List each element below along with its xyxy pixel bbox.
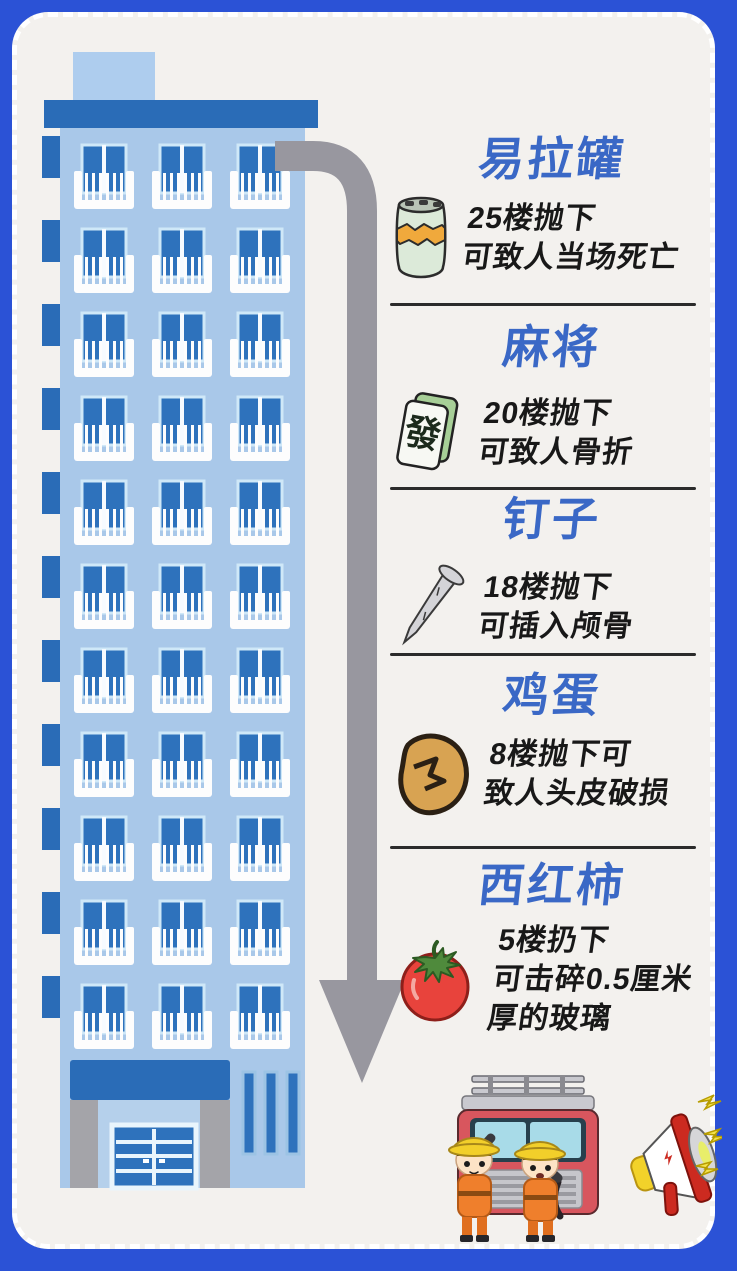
item-section-egg: 鸡蛋 8楼抛下可 致人头皮破损 bbox=[382, 670, 722, 817]
section-divider bbox=[390, 653, 696, 656]
entrance-pillar-right bbox=[200, 1100, 230, 1188]
section-divider bbox=[390, 303, 696, 306]
item-section-tomato: 西红柿 5楼扔下 可击碎0.5厘米 厚的玻璃 bbox=[382, 860, 722, 1038]
item-title: 麻将 bbox=[379, 322, 724, 373]
section-divider bbox=[390, 846, 696, 849]
item-description: 5楼扔下 可击碎0.5厘米 厚的玻璃 bbox=[485, 921, 701, 1038]
item-description: 25楼抛下 可致人当场死亡 bbox=[460, 199, 688, 277]
entrance-door bbox=[112, 1125, 196, 1188]
mahjong-tile-icon: 發 bbox=[392, 383, 466, 483]
rooftop-structure bbox=[73, 52, 155, 102]
item-description: 18楼抛下 可插入颅骨 bbox=[476, 568, 642, 646]
item-title: 易拉罐 bbox=[379, 134, 724, 185]
firefighters-illustration bbox=[430, 1072, 722, 1250]
nail-icon bbox=[392, 555, 466, 659]
item-description: 20楼抛下 可致人骨折 bbox=[476, 394, 642, 472]
entrance-canopy bbox=[70, 1060, 230, 1100]
item-title: 钉子 bbox=[379, 494, 724, 545]
item-section-can: 易拉罐 25楼抛下 可致人当场死亡 bbox=[382, 134, 722, 281]
item-title: 西红柿 bbox=[379, 860, 724, 911]
section-divider bbox=[390, 487, 696, 490]
item-section-mahjong: 麻将 發 20楼抛下 可致人骨折 bbox=[382, 322, 722, 483]
side-window-tabs bbox=[42, 136, 60, 1018]
firefighter-left bbox=[449, 1132, 499, 1242]
egg-icon bbox=[392, 731, 472, 817]
roof-band bbox=[44, 100, 318, 128]
soda-can-icon bbox=[392, 195, 450, 281]
item-title: 鸡蛋 bbox=[379, 670, 724, 721]
tile-character: 發 bbox=[401, 410, 445, 457]
tomato-icon bbox=[392, 934, 478, 1024]
item-description: 8楼抛下可 致人头皮破损 bbox=[482, 735, 679, 813]
item-section-nail: 钉子 18楼抛下 可插入颅骨 bbox=[382, 494, 722, 659]
entrance-pillar-left bbox=[70, 1100, 98, 1188]
